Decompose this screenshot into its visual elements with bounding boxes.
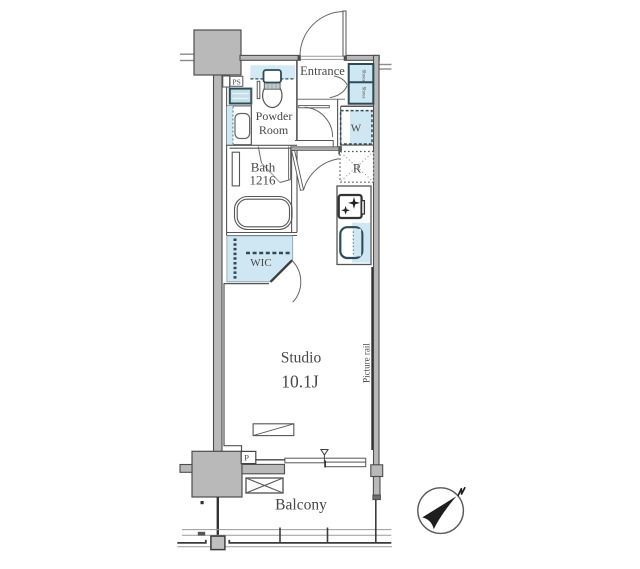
svg-text:Balcony: Balcony xyxy=(275,496,327,513)
svg-text:R: R xyxy=(353,162,362,176)
svg-text:1216: 1216 xyxy=(250,173,277,188)
svg-text:Powder: Powder xyxy=(256,109,293,123)
svg-text:P: P xyxy=(244,452,249,462)
svg-text:Entrance: Entrance xyxy=(300,64,345,78)
svg-text:PS: PS xyxy=(232,78,240,87)
svg-text:Shoes: Shoes xyxy=(361,87,366,99)
svg-text:Studio: Studio xyxy=(281,350,322,367)
svg-text:Picture rail: Picture rail xyxy=(361,343,371,383)
svg-text:WIC: WIC xyxy=(250,257,271,269)
svg-text:Room: Room xyxy=(259,123,289,137)
svg-text:10.1J: 10.1J xyxy=(281,372,319,392)
svg-text:Shoes: Shoes xyxy=(361,70,366,82)
svg-text:W: W xyxy=(351,123,362,135)
